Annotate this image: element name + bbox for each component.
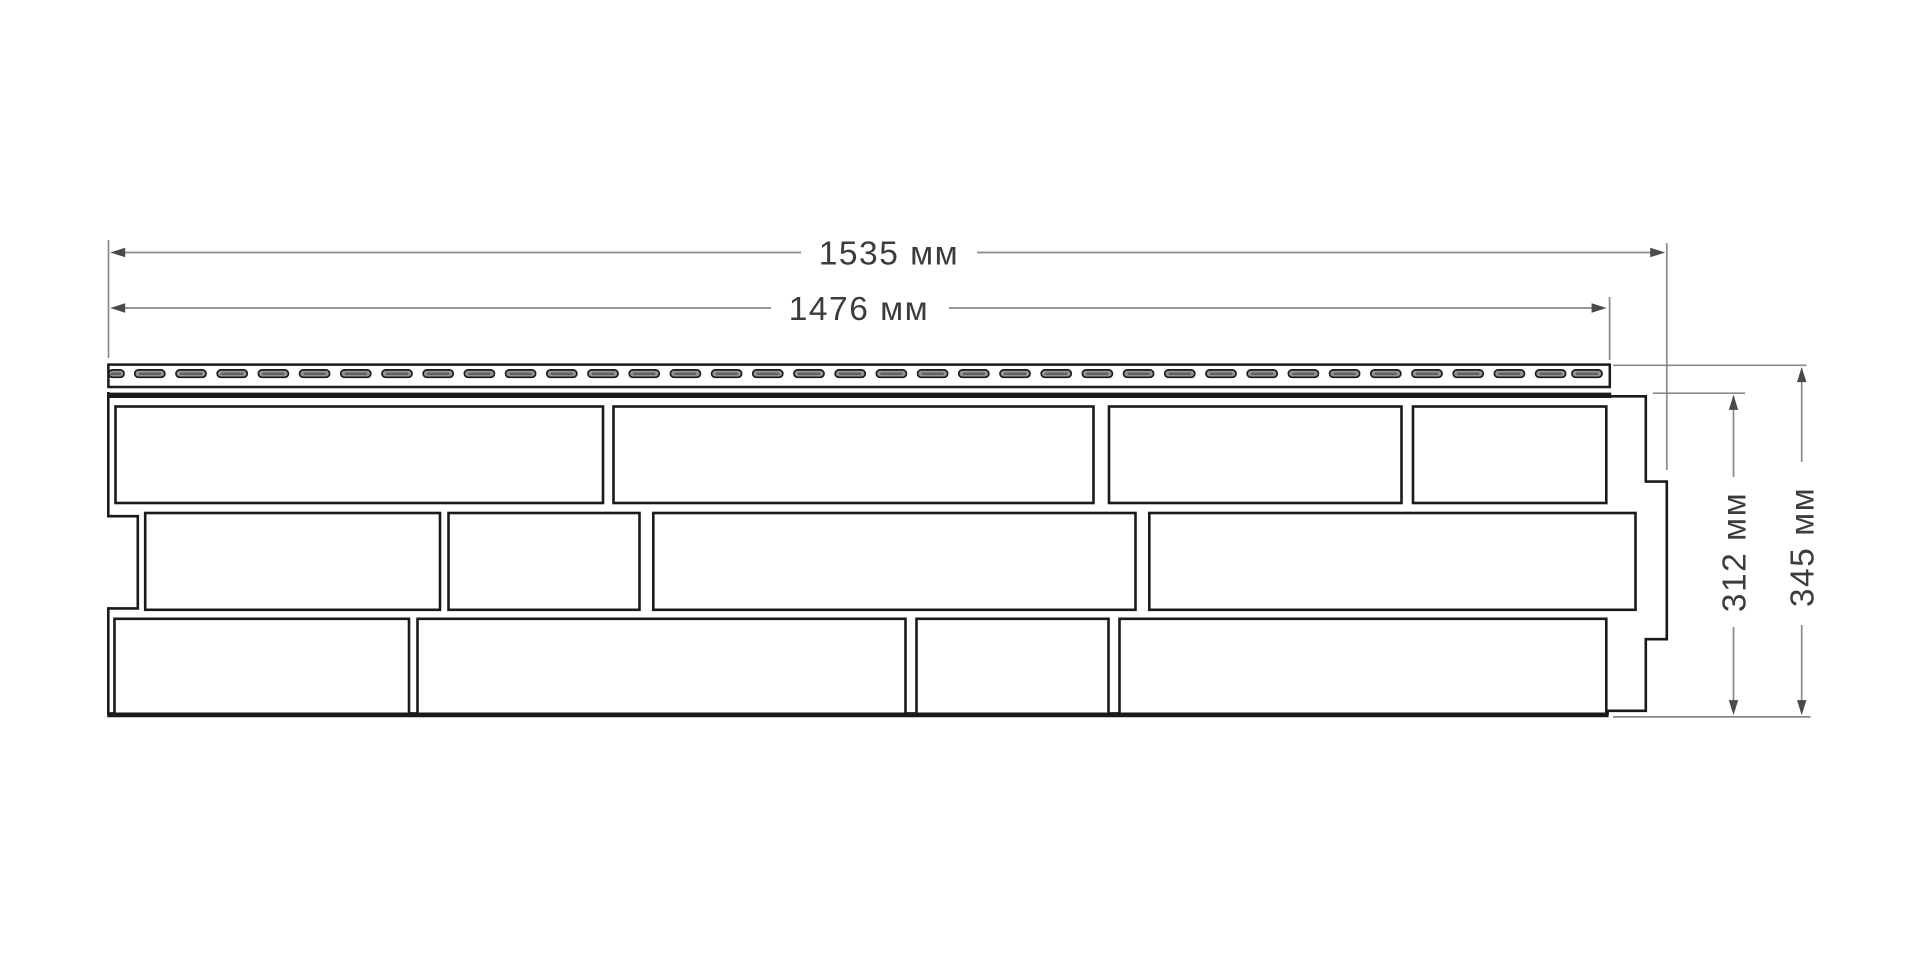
svg-text:1476 мм: 1476 мм <box>789 291 929 328</box>
svg-text:345 мм: 345 мм <box>1785 487 1822 607</box>
svg-text:1535 мм: 1535 мм <box>819 235 959 272</box>
svg-text:312 мм: 312 мм <box>1716 492 1753 612</box>
